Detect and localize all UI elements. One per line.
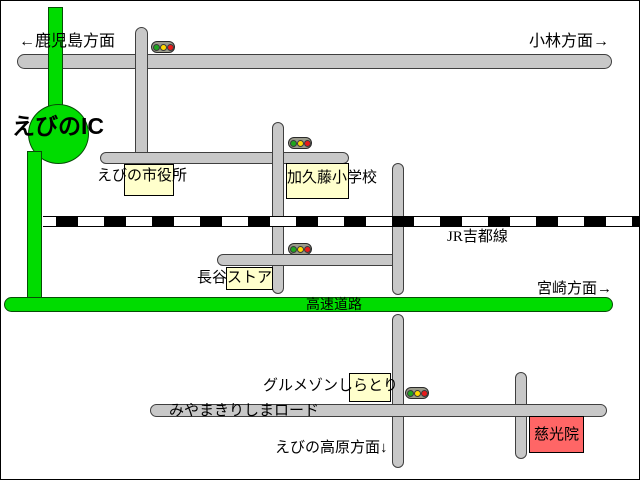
jikouin-label: 慈光院 [534,426,579,444]
main-road-east-west [17,54,612,69]
signal-yellow-light-icon [414,390,421,397]
signal-red-light-icon [421,390,428,397]
signal-red-light-icon [304,140,311,147]
ic-ramp-north [48,7,63,111]
jr-line-label: JR吉都線 [447,228,508,246]
traffic-signal-icon [288,243,312,255]
hase-store-label: 長谷ストア [197,269,272,287]
traffic-signal-icon [405,387,429,399]
signal-yellow-light-icon [297,140,304,147]
crossing-road-upper [392,163,404,295]
direction-ebino-kogen: えびの高原方面↓ [275,439,388,457]
jr-kitto-railway-line [43,216,640,227]
miyama-road-label: みやまきりしまロード [169,402,319,420]
city-hall-label: えびの市役所 [97,167,187,185]
signal-yellow-light-icon [160,44,167,51]
traffic-signal-icon [288,137,312,149]
signal-yellow-light-icon [297,246,304,253]
side-road-north [135,27,148,164]
ic-ramp-south [27,151,42,302]
school-road-vertical [272,122,284,294]
signal-green-light-icon [290,140,297,147]
expressway-label: 高速道路 [306,298,362,315]
signal-red-light-icon [304,246,311,253]
signal-red-light-icon [167,44,174,51]
traffic-signal-icon [151,41,175,53]
signal-green-light-icon [407,390,414,397]
signal-green-light-icon [153,44,160,51]
ebino-ic-label: えびのIC [12,113,104,141]
gourmet-shiratori-label: グルメゾンしらとり [263,377,398,395]
jikouin-box: 慈光院 [529,416,584,453]
map-canvas: 慈光院 ←鹿児島方面 小林方面→ えびのIC えびの市役所 加久藤小学校 JR吉… [0,0,640,480]
signal-green-light-icon [290,246,297,253]
kakuto-school-label: 加久藤小学校 [287,169,377,187]
direction-kagoshima: ←鹿児島方面 [19,32,115,51]
store-road [217,254,402,266]
direction-kobayashi: 小林方面→ [529,32,609,51]
direction-miyazaki: 宮崎方面→ [537,280,612,298]
